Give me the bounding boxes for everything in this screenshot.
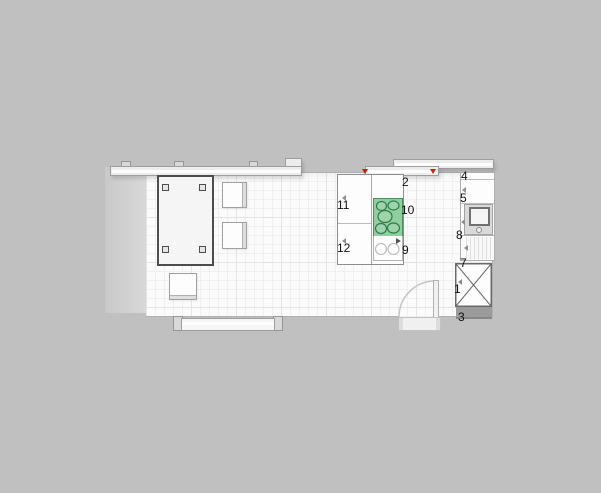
table-leg: [199, 184, 206, 191]
table-leg: [162, 184, 169, 191]
x-marking-icon: [455, 263, 492, 307]
oven-knob-icon: [476, 227, 482, 233]
window-bottom[interactable]: [181, 318, 275, 331]
burner-icons: [374, 199, 402, 237]
door-leaf[interactable]: [433, 280, 439, 320]
door-threshold[interactable]: [398, 317, 441, 331]
dishwasher-stripes: [466, 237, 493, 259]
threshold-cap: [399, 318, 403, 330]
cooktop[interactable]: [373, 198, 403, 238]
cabinet-handle-icon: [461, 219, 465, 225]
oven-unit[interactable]: [464, 204, 493, 235]
unit-divider: [461, 179, 494, 180]
floorplan-canvas: 12345789101112: [0, 0, 601, 493]
cabinet-handle-icon: [342, 195, 346, 201]
faucet-icon: [396, 238, 401, 244]
threshold-cap: [436, 318, 440, 330]
selection-marker-right-icon: [430, 169, 436, 174]
table-leg: [199, 246, 206, 253]
island-cabinet-divider: [338, 223, 371, 224]
cabinet-handle-icon: [458, 279, 462, 285]
island-divider: [371, 175, 372, 264]
left-wall-band: [105, 167, 146, 313]
tall-cabinet-x[interactable]: [455, 263, 492, 307]
dining-table[interactable]: [157, 175, 214, 266]
chair-top-right[interactable]: [222, 182, 247, 208]
cabinet-handle-icon: [342, 238, 346, 244]
right-wall-units[interactable]: [460, 172, 495, 237]
cabinet-handle-icon: [464, 245, 468, 251]
oven-door: [469, 207, 490, 226]
table-leg: [162, 246, 169, 253]
cabinet-handle-icon: [462, 187, 466, 193]
cabinet-plinth: [456, 307, 492, 319]
chair-below-table[interactable]: [169, 273, 197, 300]
chair-bottom-right[interactable]: [222, 222, 247, 249]
